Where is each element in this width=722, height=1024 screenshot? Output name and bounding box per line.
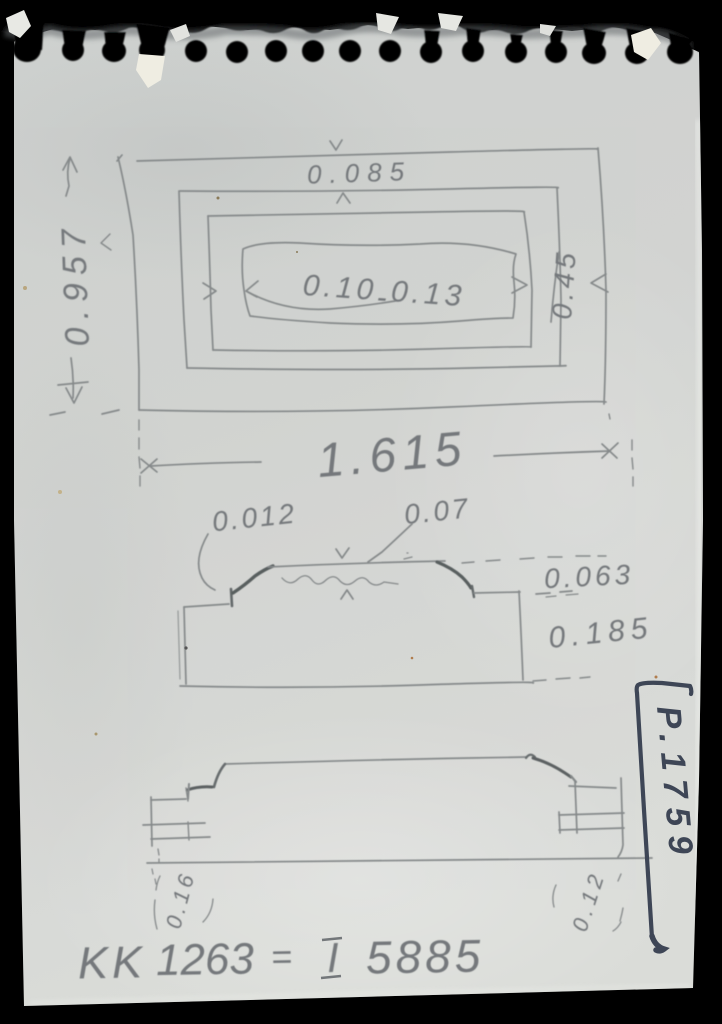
svg-text:0.957: 0.957: [55, 221, 97, 347]
svg-text:KK: KK: [78, 936, 147, 988]
svg-text:0.063: 0.063: [543, 559, 635, 595]
svg-text:0.45: 0.45: [546, 248, 582, 320]
svg-text:=: =: [271, 936, 293, 977]
svg-text:I: I: [327, 934, 340, 981]
svg-text:5885: 5885: [366, 929, 485, 983]
svg-text:1263: 1263: [156, 934, 255, 985]
svg-text:0.085: 0.085: [307, 156, 413, 190]
